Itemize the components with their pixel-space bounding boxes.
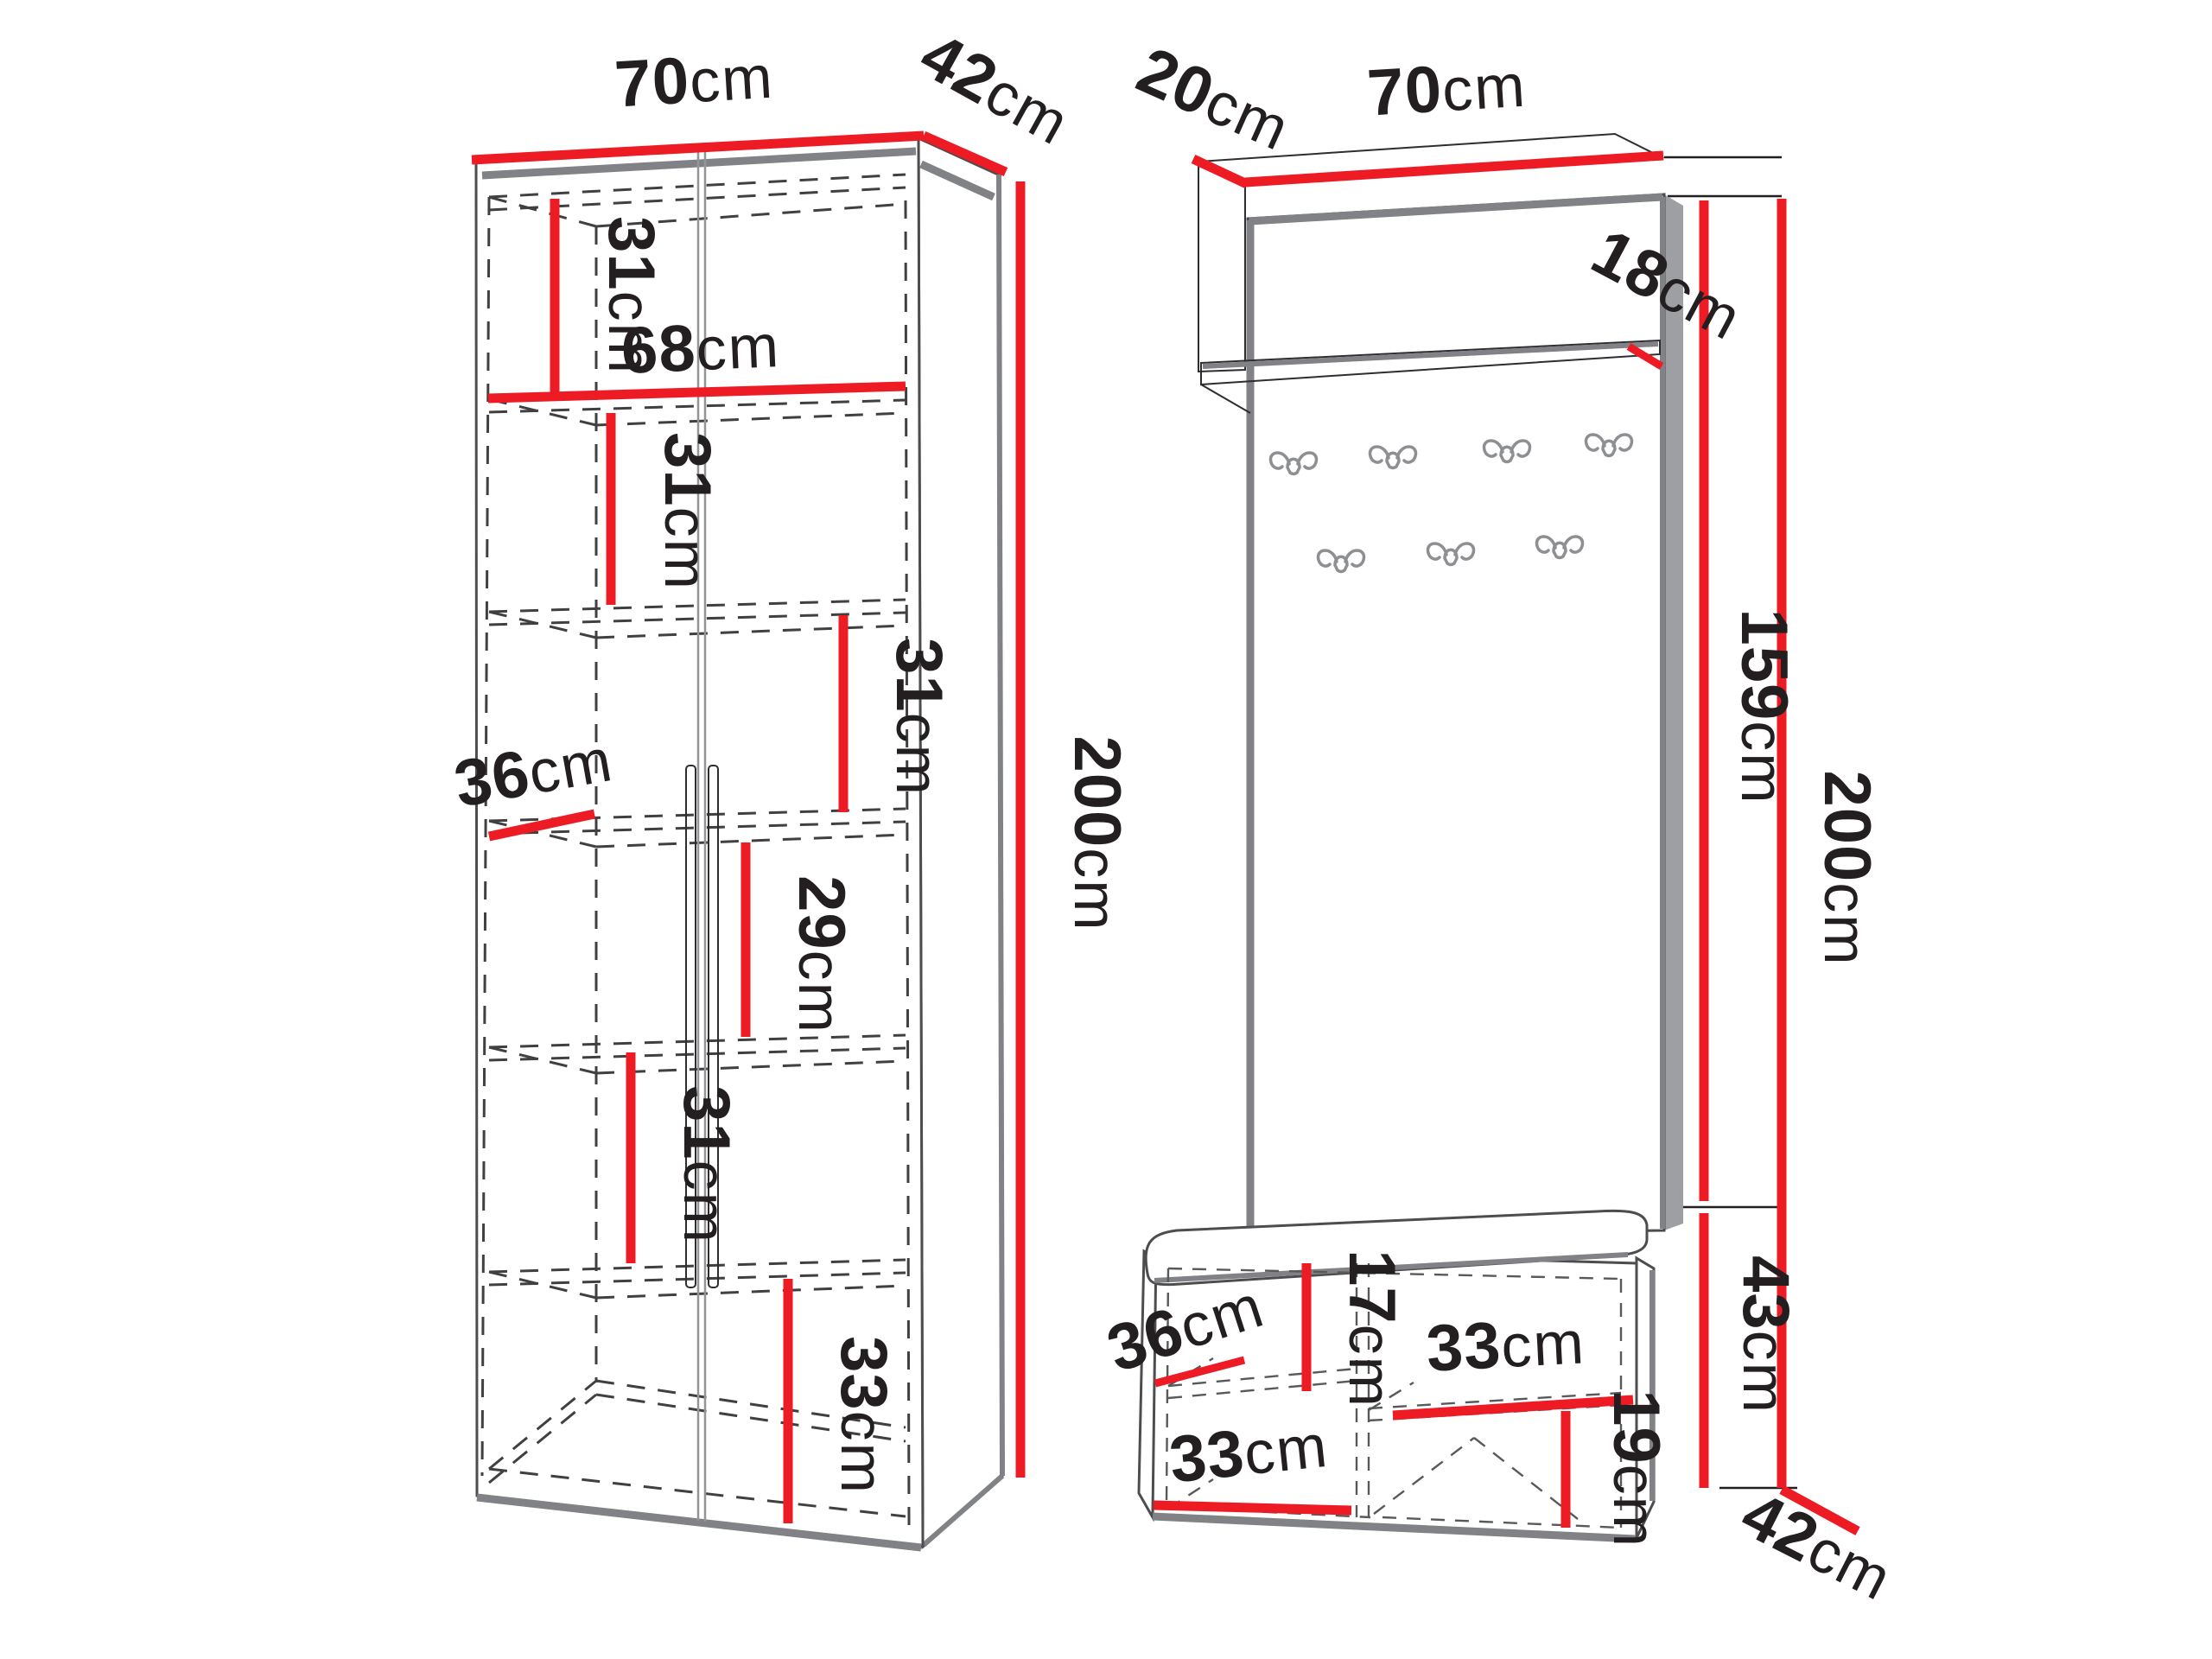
label-compartment-2: 31cm	[651, 432, 724, 591]
label-wardrobe-width: 70cm	[613, 39, 776, 122]
dim-line-shelf-width	[1245, 156, 1663, 182]
label-panel-height: 159cm	[1727, 608, 1801, 804]
label-bench-height: 43cm	[1729, 1255, 1802, 1414]
wall-shelf-board-underside	[1201, 385, 1250, 413]
wardrobe-side-back-edge	[999, 175, 1002, 1476]
hallway-unit: 20cm 70cm 18cm 159cm 200cm 43cm 42cm 36c…	[1099, 33, 1905, 1614]
panel-side-band	[1664, 194, 1683, 1230]
label-interior-width: 68cm	[620, 308, 781, 388]
label-compartment-6: 33cm	[827, 1336, 900, 1495]
label-bench-upper-height: 17cm	[1335, 1249, 1408, 1408]
label-bench-lower-height: 19cm	[1599, 1389, 1673, 1548]
label-shelf-depth: 20cm	[1127, 33, 1302, 164]
label-shelf-width: 70cm	[1365, 48, 1529, 130]
label-compartment-3: 31cm	[882, 638, 956, 797]
label-compartment-5: 31cm	[670, 1085, 743, 1244]
wardrobe-side-face	[918, 138, 1002, 1547]
label-bench-right-width: 33cm	[1425, 1304, 1587, 1386]
label-compartment-4: 29cm	[785, 875, 858, 1034]
label-total-height: 200cm	[1810, 770, 1884, 966]
wall-shelf-left-side	[1198, 162, 1245, 372]
dim-line-shelf-depth	[1193, 159, 1247, 184]
furniture-dimensions-diagram: 70cm 42cm 200cm 31cm 68cm 31cm 31cm 36cm…	[0, 0, 2212, 1659]
diagram-canvas: 70cm 42cm 200cm 31cm 68cm 31cm 31cm 36cm…	[0, 0, 2212, 1659]
label-wardrobe-height: 200cm	[1060, 735, 1134, 931]
dim-line-bench-left-width	[1154, 1505, 1351, 1510]
label-bench-depth: 42cm	[1730, 1478, 1904, 1615]
wardrobe-unit: 70cm 42cm 200cm 31cm 68cm 31cm 31cm 36cm…	[449, 18, 1134, 1548]
